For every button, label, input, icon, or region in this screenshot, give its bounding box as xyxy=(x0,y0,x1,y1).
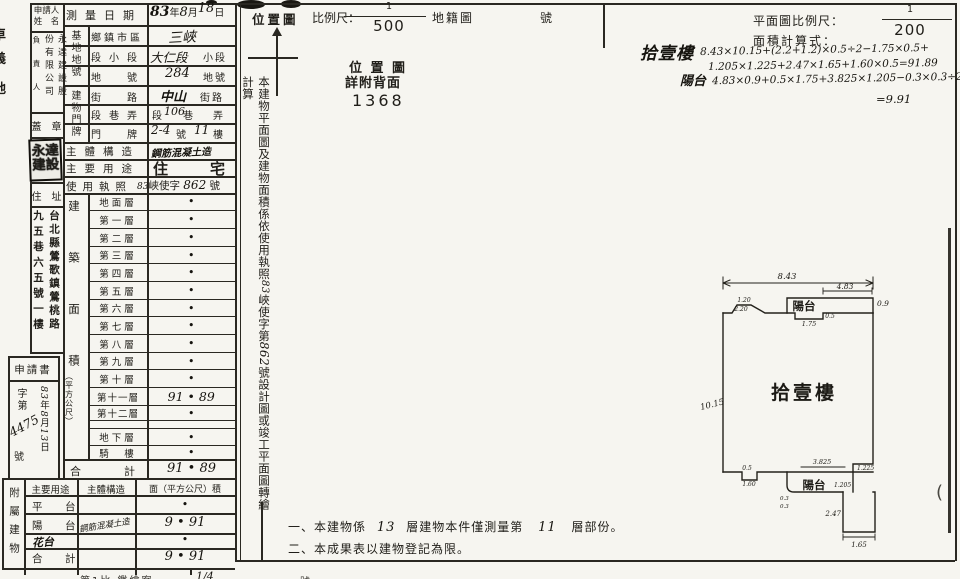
door-row3-label: 門 牌 xyxy=(91,126,144,141)
table-row: 第二層• xyxy=(89,229,236,247)
location-scale-fraction: 1 xyxy=(374,2,404,12)
note1-surveyed-floor: 11 xyxy=(528,520,567,535)
survey-month: 8 xyxy=(179,5,187,20)
table-row: 第六層• xyxy=(89,300,236,317)
annex-side-label: 附屬建物 xyxy=(7,487,22,561)
note1-total-floors: 13 xyxy=(371,520,402,535)
annex-row-use: 花台 xyxy=(31,533,54,550)
calc-result-balcony: =9.91 xyxy=(876,92,911,106)
site-town-value: 三峽 xyxy=(167,26,196,47)
address-col1: 台北縣鶯歌鎮鶯桃路 xyxy=(47,210,62,350)
survey-month-unit: 月 xyxy=(188,8,198,19)
north-arrow-head xyxy=(272,27,282,36)
site-group-label: 基地地號 xyxy=(67,30,82,78)
door-floor-unit: 樓 xyxy=(213,126,223,141)
floor-label: 第十層 xyxy=(89,372,148,386)
scale-numerator: 1 xyxy=(374,2,404,12)
lot-number-value: 284 xyxy=(165,66,190,81)
table-row: 第七層• xyxy=(89,317,236,335)
applicant-name-label-line2: 姓 名 xyxy=(31,17,62,28)
application-date-day: 13 xyxy=(38,428,49,442)
floor-value: • xyxy=(148,446,236,459)
lane-mid: 巷 xyxy=(183,107,193,122)
door-floor-value: 11 xyxy=(194,123,209,137)
application-date-year: 83 xyxy=(38,386,49,400)
door-number-value: 2-4 xyxy=(151,123,170,137)
dim-notch-depth: 0.5 xyxy=(825,313,835,320)
door-group-label: 建物門牌 xyxy=(67,90,82,138)
dim-protrusion-height: 2.47 xyxy=(824,510,841,518)
address-label: 住 址 xyxy=(31,188,62,203)
site-row2-label: 段小段 xyxy=(91,49,144,64)
application-no-suffix: 號 xyxy=(14,448,24,463)
dim-corner-b: 0.3 xyxy=(780,504,789,510)
edge-fragment: 卓 xyxy=(0,24,6,43)
edge-fragment: 地 xyxy=(0,78,6,97)
vertical-note-seg1: 本建物平面圖及建物面積係依使用執照 xyxy=(257,76,271,280)
license-label: 使用執照 xyxy=(66,179,138,194)
table-row: 第五層• xyxy=(89,282,236,300)
dim-bottom-notch-width: 1.60 xyxy=(742,481,756,488)
dim-bottom-notch-depth: 0.5 xyxy=(742,465,752,472)
seal-label: 蓋 章 xyxy=(31,118,62,133)
note-line1: 一、本建物係 13 層建物本件僅測量第 11 層部份。 xyxy=(288,518,623,535)
license-number: 862 xyxy=(183,178,206,192)
plan-scale-numerator: 1 xyxy=(895,4,925,15)
rule xyxy=(190,568,192,575)
annex-header-structure: 主體構造 xyxy=(77,482,135,496)
site-section-suffix: 小段 xyxy=(203,49,227,64)
plan-scale-label: 平面圖比例尺： xyxy=(753,12,844,29)
sheet-number: 1368 xyxy=(352,91,405,110)
floor-label: 第八層 xyxy=(89,337,148,351)
license-text: 峽使字 xyxy=(148,180,180,192)
address-col2: 九五巷六五號一樓 xyxy=(31,210,46,350)
floor-value: • xyxy=(148,249,236,262)
floor-label: 第十一層 xyxy=(89,390,148,404)
annex-total-label: 合 計 xyxy=(32,551,82,566)
floor-label: 第三層 xyxy=(89,248,148,262)
license-year: 83 xyxy=(137,182,148,192)
rule xyxy=(58,356,60,478)
table-row xyxy=(89,421,236,429)
floor-value: • xyxy=(148,266,236,279)
door-number-unit: 號 xyxy=(176,126,186,141)
floor-area-table: 地面層• 第一層• 第二層• 第三層• 第四層• 第五層• 第六層• 第七層• … xyxy=(89,193,236,459)
dim-notch-width: 1.75 xyxy=(802,320,816,328)
note1-mid: 層建物本件僅測量第 xyxy=(406,520,523,534)
dim-balcony-width: 4.83 xyxy=(836,282,854,291)
rule xyxy=(30,352,63,354)
application-date-month: 8 xyxy=(38,411,49,418)
north-arrow-crossbar xyxy=(248,57,298,59)
year-unit: 年 xyxy=(38,400,49,411)
survey-date-value: 83年8月18日 xyxy=(150,4,224,20)
cadastral-no-label: 號 xyxy=(540,9,552,26)
floor-area-unit-label: （平方公尺） xyxy=(64,372,75,426)
ink-blob xyxy=(237,0,265,9)
floor-plan-drawing: 8.43 10.15 陽台 4.83 0.9 1.20 2.20 1.75 0.… xyxy=(683,258,955,558)
lane-value: 106 xyxy=(164,105,185,118)
survey-day: 18 xyxy=(198,1,215,16)
table-row: 第一層• xyxy=(89,211,236,229)
license-value: 83峽使字 862 號 xyxy=(137,178,220,193)
lane-suffix: 弄 xyxy=(213,107,223,122)
floor-value: • xyxy=(148,195,236,208)
calc-line1: 8.43×10.15+(2.2+1.2)×0.5÷2−1.75×0.5+ xyxy=(700,42,929,58)
floor-label: 地下層 xyxy=(89,430,148,444)
dim-step: 1.225 xyxy=(857,465,874,472)
site-row1-label: 鄉鎮市區 xyxy=(91,29,144,44)
dim-protrusion-width: 1.65 xyxy=(851,541,867,549)
floor-label: 第九層 xyxy=(89,354,148,368)
rule xyxy=(2,478,4,568)
vertical-note-seg2: 峽使字第 xyxy=(257,294,271,342)
calc-line2: 1.205×1.225+2.47×1.65+1.60×0.5=91.89 xyxy=(708,57,938,73)
license-suffix: 號 xyxy=(210,180,221,192)
rule xyxy=(30,206,63,208)
door-row1-label: 街 路 xyxy=(91,89,144,104)
dim-bump-bottom: 2.20 xyxy=(733,306,748,313)
vertical-note: 本建物平面圖及建物面積係依使用執照83峽使字第862號設計圖或竣工平面圖轉繪計算 xyxy=(240,76,272,521)
calc-floor-label: 拾壹樓 xyxy=(640,39,694,64)
location-note-line2: 詳附背面 xyxy=(345,72,401,91)
location-scale-denominator: 500 xyxy=(366,18,412,35)
table-row: 第九層• xyxy=(89,353,236,370)
table-row: 第十一層91 • 89 xyxy=(89,388,236,406)
seal-text-line2: 建設 xyxy=(32,157,60,174)
table-row: 第十二層• xyxy=(89,406,236,421)
application-date: 83年8月13日 xyxy=(36,386,50,478)
table-row: 第十層• xyxy=(89,370,236,388)
calc-balcony-label: 陽台 xyxy=(680,70,706,89)
clipped-bottom-text: 第1比 鑑繪案 xyxy=(80,572,154,579)
survey-year: 83 xyxy=(150,4,169,20)
rule xyxy=(30,31,63,33)
street-suffix: 街路 xyxy=(200,89,224,104)
dim-bump-top: 1.20 xyxy=(737,297,751,304)
annex-row-area: • xyxy=(135,498,235,511)
floor-value: • xyxy=(148,319,236,332)
day-unit: 日 xyxy=(38,442,49,453)
annex-row-area: • xyxy=(135,533,235,546)
usage-label: 主要用途 xyxy=(66,161,144,176)
rule xyxy=(77,568,79,575)
clipped-bottom-text: 號 xyxy=(300,573,310,579)
floor-value: • xyxy=(148,372,236,385)
rule xyxy=(30,182,63,184)
application-label: 申請書 xyxy=(8,362,58,377)
annex-total-value: 9 • 91 xyxy=(135,549,235,564)
floor-value: • xyxy=(148,407,236,420)
scale-denominator: 500 xyxy=(366,18,412,35)
table-row: 第八層• xyxy=(89,335,236,353)
floor-label: 第四層 xyxy=(89,266,148,280)
annex-row-use: 陽 台 xyxy=(32,518,82,533)
plan-scale-denominator: 200 xyxy=(888,21,932,39)
floor-label: 第六層 xyxy=(89,301,148,315)
lot-number-suffix: 地號 xyxy=(203,69,227,84)
floor-value: • xyxy=(148,355,236,368)
floor-total-value: 91 • 89 xyxy=(150,461,233,476)
north-arrow-shaft xyxy=(276,34,278,96)
dim-bottom-balcony-depth: 1.205 xyxy=(834,482,851,489)
door-row2-label: 段巷弄 xyxy=(91,107,144,122)
dim-overall-width: 8.43 xyxy=(778,272,797,282)
floor-value: • xyxy=(148,302,236,315)
room-label-11f: 拾壹樓 xyxy=(771,381,837,404)
floor-label: 第五層 xyxy=(89,284,148,298)
site-row3-label: 地 號 xyxy=(91,69,144,84)
rule xyxy=(235,560,955,562)
note-line2: 二、本成果表以建物登記為限。 xyxy=(288,540,470,557)
table-row: 第四層• xyxy=(89,264,236,282)
cadastral-map-label: 地籍圖 xyxy=(432,9,474,26)
dim-balcony-depth: 0.9 xyxy=(877,299,889,308)
applicant-name-label-line1: 申請人 xyxy=(31,6,62,17)
address-cell: 九五巷六五號一樓 台北縣鶯歌鎮鶯桃路 xyxy=(31,210,62,350)
note1-post: 層部份。 xyxy=(571,520,623,534)
edge-fragment: 義 xyxy=(0,48,6,67)
floor-total-label: 合 計 xyxy=(70,463,151,479)
company-name-col2: 份有限公司 xyxy=(42,34,55,110)
vertical-note-hw-862: 862 xyxy=(257,342,271,366)
applicant-company-cell: 負責人 份有限公司 永達建設股 xyxy=(31,34,62,110)
annex-balcony-structure: 鋼筋混凝土造 xyxy=(78,515,130,535)
dim-corner-a: 0.3 xyxy=(780,496,789,502)
role-label: 負責人 xyxy=(31,34,42,110)
floor-value: • xyxy=(148,431,236,444)
floor-value: • xyxy=(148,231,236,244)
dim-overall-height: 10.15 xyxy=(699,397,725,413)
building-survey-document: 卓 義 地 ( 申請人 姓 xyxy=(0,0,960,579)
rule xyxy=(24,568,26,575)
floor-value: • xyxy=(148,337,236,350)
floor-label: 第十二層 xyxy=(89,406,148,420)
annex-header-area: 面（平方公尺）積 xyxy=(135,482,235,495)
table-row: 地面層• xyxy=(89,193,236,211)
balcony-bottom-label: 陽台 xyxy=(803,478,826,492)
clipped-bottom-text: 1/4 xyxy=(196,570,214,579)
floor-plan-outline xyxy=(723,277,875,540)
site-section-value: 大仁段 xyxy=(150,47,188,66)
table-row: 地下層• xyxy=(89,429,236,446)
balcony-top-label: 陽台 xyxy=(793,299,816,313)
floor-label: 騎 樓 xyxy=(89,446,148,460)
annex-balcony-area: 9 • 91 xyxy=(135,515,235,530)
structure-label: 主體構造 xyxy=(66,144,144,159)
vertical-note-hw-83: 83 xyxy=(259,280,270,294)
floor-label: 第二層 xyxy=(89,231,148,245)
application-no-prefix: 字第 xyxy=(13,388,28,412)
rule xyxy=(603,3,605,48)
floor-label: 第七層 xyxy=(89,319,148,333)
dim-bottom-balcony-width: 3.825 xyxy=(813,458,832,466)
floor-label: 第一層 xyxy=(89,213,148,227)
rule xyxy=(235,3,237,561)
rule xyxy=(30,112,63,114)
floor-value: • xyxy=(148,284,236,297)
lane-pre: 段 xyxy=(152,107,162,122)
month-unit: 月 xyxy=(38,418,49,429)
annex-row-use: 平 台 xyxy=(32,499,82,514)
annex-header-use: 主要用途 xyxy=(24,482,77,496)
table-row: 第三層• xyxy=(89,247,236,264)
rule xyxy=(8,380,58,382)
floor-label: 地面層 xyxy=(89,195,148,209)
location-scale-label: 比例尺： xyxy=(312,9,360,26)
rule xyxy=(955,3,957,561)
note1-pre: 一、本建物係 xyxy=(288,520,366,534)
rule xyxy=(88,25,90,142)
survey-date-label: 測量日期 xyxy=(66,7,144,23)
floor-value: • xyxy=(148,213,236,226)
location-map-title: 位置圖 xyxy=(252,9,299,28)
table-row: 騎 樓• xyxy=(89,446,236,459)
survey-year-unit: 年 xyxy=(169,8,179,19)
rule xyxy=(8,356,58,358)
street-value: 中山 xyxy=(160,86,186,105)
calc-line3: 4.83×0.9+0.5×1.75+3.825×1.205−0.3×0.3÷2 xyxy=(712,71,960,87)
survey-day-unit: 日 xyxy=(214,8,224,19)
company-seal-stamp: 永達 建設 xyxy=(28,138,62,181)
floor-value-11f: 91 • 89 xyxy=(148,389,236,404)
